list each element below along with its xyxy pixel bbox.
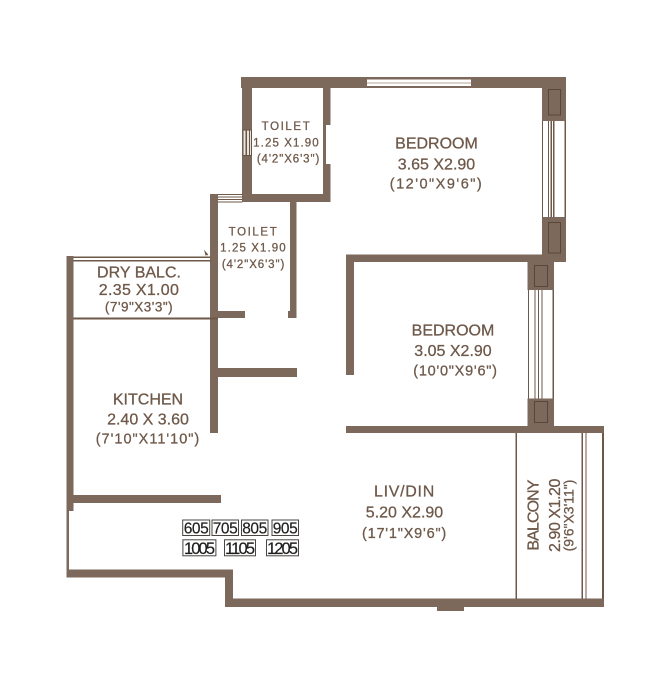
svg-text:TOILET: TOILET	[262, 121, 312, 133]
svg-text:(17'1"X9'6"): (17'1"X9'6")	[362, 526, 447, 542]
svg-text:1.25 X1.90: 1.25 X1.90	[220, 243, 287, 255]
svg-text:LIV/DIN: LIV/DIN	[374, 484, 435, 501]
svg-text:KITCHEN: KITCHEN	[113, 392, 183, 409]
svg-text:2.35 X1.00: 2.35 X1.00	[99, 282, 179, 299]
svg-text:(12'0"X9'6"): (12'0"X9'6")	[390, 177, 483, 193]
svg-text:605: 605	[184, 521, 209, 538]
svg-text:1.25 X1.90: 1.25 X1.90	[253, 138, 320, 150]
svg-text:905: 905	[273, 521, 298, 538]
svg-text:1005: 1005	[184, 540, 215, 558]
svg-text:1105: 1105	[225, 540, 255, 558]
svg-text:2.40 X 3.60: 2.40 X 3.60	[107, 412, 189, 429]
svg-text:(9'6"X3'11"): (9'6"X3'11")	[561, 480, 577, 552]
svg-text:(4'2"X6'3"): (4'2"X6'3")	[257, 154, 320, 166]
svg-text:BALCONY: BALCONY	[526, 479, 543, 550]
svg-text:BEDROOM: BEDROOM	[412, 323, 495, 340]
svg-text:(7'10"X11'10"): (7'10"X11'10")	[96, 432, 201, 448]
svg-text:(7'9"X3'3"): (7'9"X3'3")	[105, 300, 173, 315]
svg-text:(10'0"X9'6"): (10'0"X9'6")	[413, 364, 497, 380]
svg-text:805: 805	[242, 521, 267, 538]
svg-text:(4'2"X6'3"): (4'2"X6'3")	[222, 259, 285, 271]
svg-text:DRY BALC.: DRY BALC.	[97, 265, 181, 282]
svg-text:BEDROOM: BEDROOM	[395, 136, 478, 153]
svg-text:705: 705	[213, 521, 238, 538]
svg-text:3.65 X2.90: 3.65 X2.90	[398, 157, 476, 174]
svg-text:TOILET: TOILET	[229, 227, 279, 239]
svg-text:5.20 X2.90: 5.20 X2.90	[366, 505, 444, 522]
svg-text:3.05 X2.90: 3.05 X2.90	[414, 343, 492, 360]
svg-text:1205: 1205	[267, 540, 298, 558]
